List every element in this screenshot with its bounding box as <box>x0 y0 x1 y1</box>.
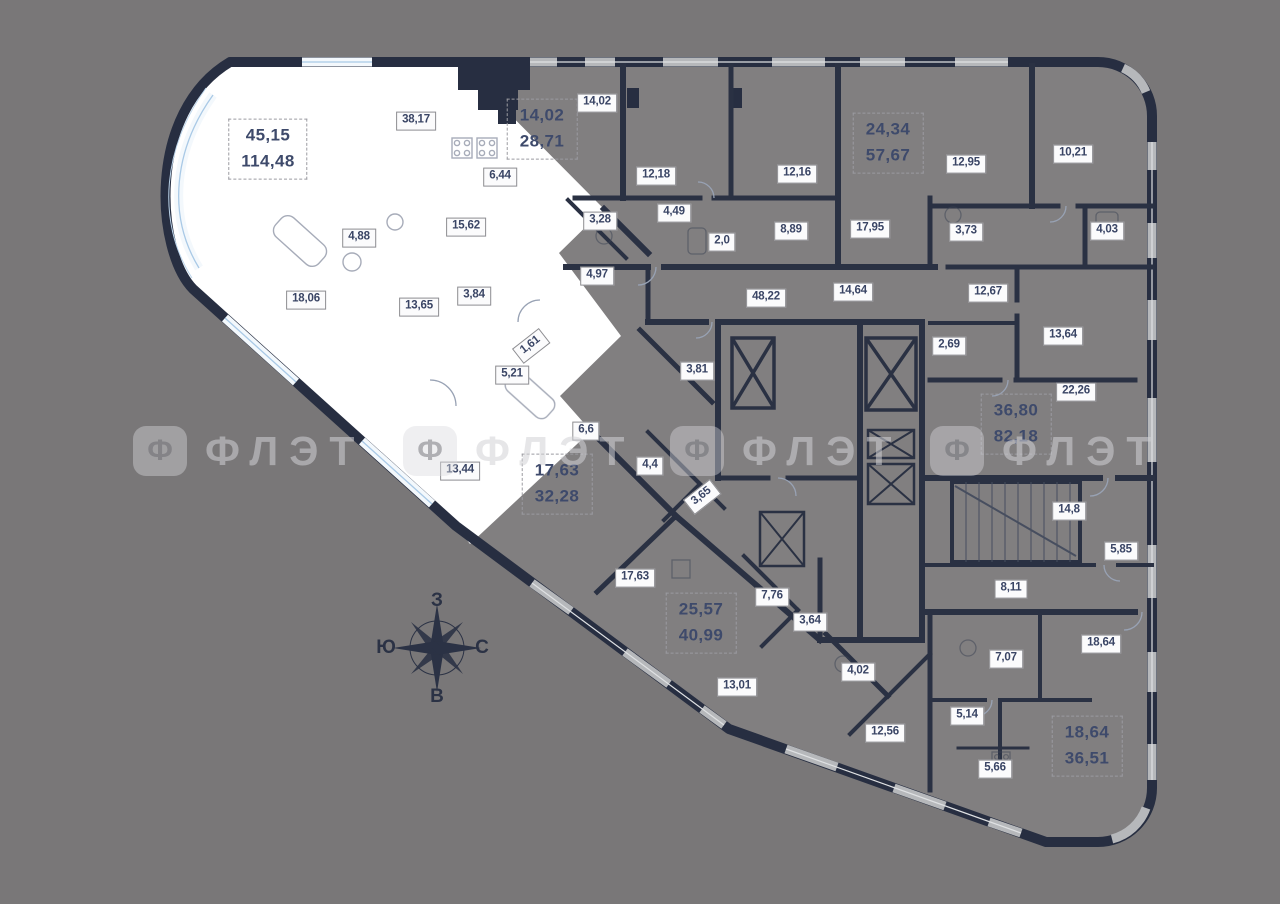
room-area-label: 18,06 <box>286 291 326 310</box>
apartment-summary-label: 17,6332,28 <box>522 454 593 515</box>
room-area-label: 14,02 <box>577 94 617 113</box>
room-area-label: 3,28 <box>583 212 617 231</box>
room-area-label: 48,22 <box>746 289 786 308</box>
room-area-label: 3,73 <box>949 223 983 242</box>
room-area-label: 12,95 <box>946 155 986 174</box>
room-area-label: 4,02 <box>841 663 875 682</box>
room-area-label: 22,26 <box>1056 383 1096 402</box>
room-area-label: 14,8 <box>1052 502 1086 521</box>
room-area-label: 12,16 <box>777 165 817 184</box>
room-area-label: 38,17 <box>396 112 436 131</box>
compass-east-label: В <box>430 686 444 708</box>
room-area-label: 4,88 <box>342 229 376 248</box>
room-area-label: 7,07 <box>989 650 1023 669</box>
room-area-label: 5,66 <box>978 760 1012 779</box>
compass-south-label: Ю <box>376 637 396 659</box>
room-area-label: 4,49 <box>657 204 691 223</box>
room-area-label: 3,64 <box>793 613 827 632</box>
highlighted-apartment-summary-label: 45,15114,48 <box>228 119 307 180</box>
room-area-label: 6,6 <box>572 422 599 441</box>
room-area-label: 13,65 <box>399 298 439 317</box>
room-area-label: 3,81 <box>680 362 714 381</box>
room-area-label: 2,69 <box>932 337 966 356</box>
room-area-label: 5,85 <box>1104 542 1138 561</box>
room-area-label: 15,62 <box>446 218 486 237</box>
room-area-label: 4,4 <box>636 457 663 476</box>
room-area-label: 17,63 <box>615 569 655 588</box>
apartment-summary-label: 25,5740,99 <box>666 593 737 654</box>
room-area-label: 18,64 <box>1081 635 1121 654</box>
room-area-label: 7,76 <box>755 588 789 607</box>
apartment-summary-label: 18,6436,51 <box>1052 716 1123 777</box>
room-area-label: 4,97 <box>580 267 614 286</box>
compass-west-label: З <box>431 590 443 612</box>
compass-north-label: С <box>475 637 489 659</box>
room-area-label: 4,03 <box>1090 222 1124 241</box>
room-area-label: 12,67 <box>968 284 1008 303</box>
room-area-label: 17,95 <box>850 220 890 239</box>
room-area-label: 12,18 <box>636 167 676 186</box>
apartment-summary-label: 14,0228,71 <box>507 99 578 160</box>
room-area-label: 10,21 <box>1053 145 1093 164</box>
room-area-label: 12,56 <box>865 724 905 743</box>
room-area-label: 6,44 <box>483 168 517 187</box>
room-area-label: 5,14 <box>950 707 984 726</box>
room-area-label: 13,01 <box>717 678 757 697</box>
room-area-label: 2,0 <box>708 233 735 252</box>
room-area-label: 8,11 <box>995 580 1028 599</box>
room-area-label: 13,64 <box>1043 327 1083 346</box>
room-area-label: 13,44 <box>440 462 480 481</box>
room-area-label: 14,64 <box>833 283 873 302</box>
compass-rose <box>393 604 481 692</box>
apartment-summary-label: 24,3457,67 <box>853 113 924 174</box>
apartment-summary-label: 36,8082,18 <box>981 394 1052 455</box>
room-area-label: 5,21 <box>495 366 529 385</box>
room-area-label: 8,89 <box>774 222 808 241</box>
floor-plan: 38,176,4414,0212,183,284,492,08,8912,161… <box>0 0 1280 904</box>
room-area-label: 3,84 <box>457 287 491 306</box>
